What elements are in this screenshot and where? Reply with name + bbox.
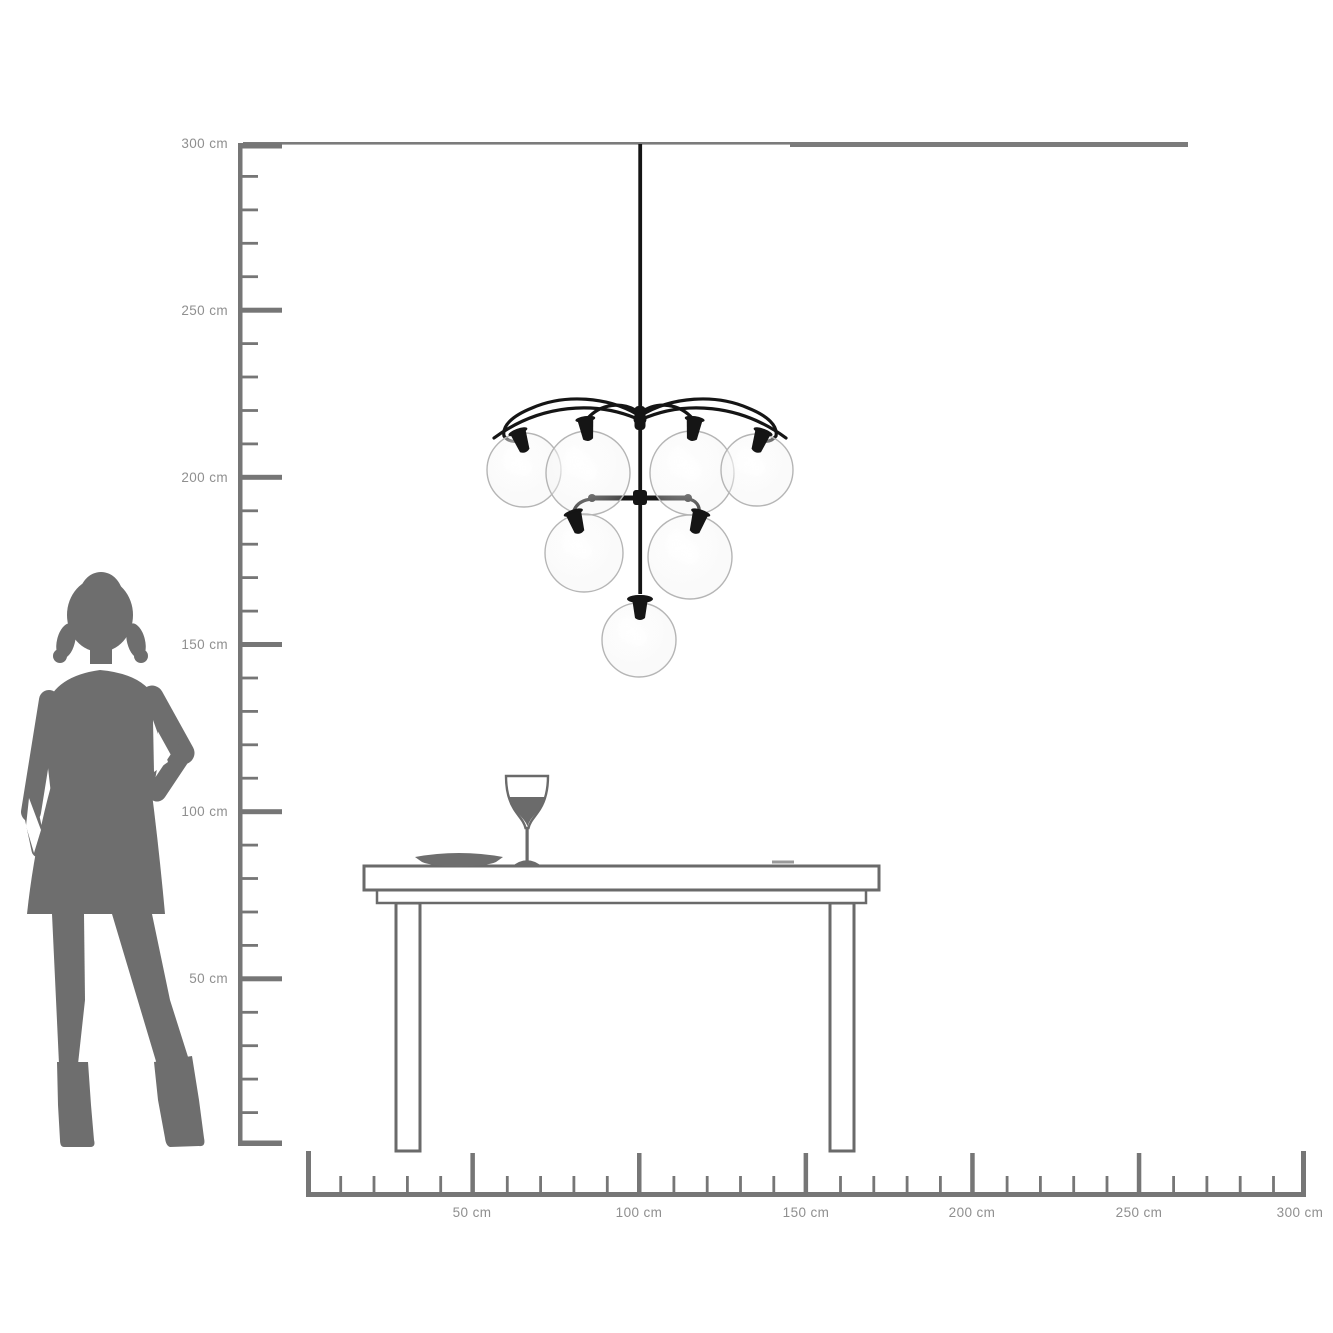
- hruler-label-150: 150 cm: [783, 1205, 830, 1220]
- glass-globe: [545, 514, 623, 592]
- glass-globe: [546, 431, 630, 515]
- skirt: [27, 786, 165, 914]
- vruler-label-100: 100 cm: [181, 804, 228, 819]
- dimension-diagram: 300 cm 250 cm 200 cm 150 cm 100 cm 50 cm…: [0, 0, 1333, 1333]
- ceiling-line: [243, 142, 1188, 147]
- hruler-label-250: 250 cm: [1116, 1205, 1163, 1220]
- hruler-label-50: 50 cm: [453, 1205, 492, 1220]
- wine-glass-stem: [526, 827, 529, 861]
- wine-fill: [509, 797, 546, 827]
- table-surface-mark: [772, 861, 794, 864]
- woman-silhouette: [26, 572, 204, 1147]
- wine-glass: [506, 776, 548, 867]
- table-top: [364, 866, 879, 890]
- vruler-label-50: 50 cm: [189, 971, 228, 986]
- lamp-rod: [638, 144, 642, 594]
- horizontal-ruler: 50 cm 100 cm 150 cm 200 cm 250 cm 300 cm: [306, 1151, 1323, 1220]
- hruler-label-200: 200 cm: [949, 1205, 996, 1220]
- table-apron: [377, 890, 866, 903]
- table-leg-left: [396, 903, 420, 1151]
- wine-glass-foot: [512, 860, 542, 866]
- pendant-lamp: [487, 144, 793, 677]
- vruler-label-150: 150 cm: [181, 637, 228, 652]
- left-leg: [52, 914, 85, 1064]
- plate: [415, 853, 503, 867]
- vruler-label-200: 200 cm: [181, 470, 228, 485]
- hruler-label-300: 300 cm: [1277, 1205, 1324, 1220]
- hruler-label-100: 100 cm: [616, 1205, 663, 1220]
- head: [79, 572, 123, 622]
- right-boot: [154, 1056, 204, 1147]
- scene-svg: 300 cm 250 cm 200 cm 150 cm 100 cm 50 cm…: [0, 0, 1333, 1333]
- left-arm: [31, 700, 49, 812]
- table-leg-right: [830, 903, 854, 1151]
- glass-globe: [648, 515, 732, 599]
- dining-table: [364, 861, 879, 1152]
- vertical-ruler: 300 cm 250 cm 200 cm 150 cm 100 cm 50 cm: [181, 136, 282, 1146]
- right-leg: [112, 914, 189, 1068]
- vruler-label-300: 300 cm: [181, 136, 228, 151]
- vruler-label-250: 250 cm: [181, 303, 228, 318]
- left-boot: [57, 1062, 95, 1147]
